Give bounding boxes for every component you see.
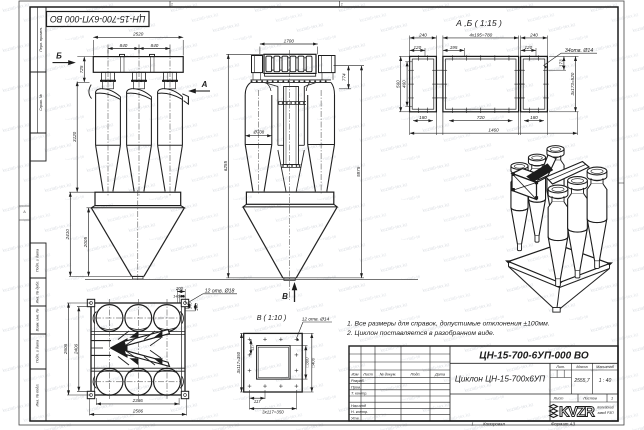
- svg-text:5975: 5975: [356, 166, 361, 177]
- svg-text:1. Все размеры для справок, до: 1. Все размеры для справок, допустимые о…: [347, 320, 550, 328]
- svg-text:2. Циклон поставляется в разоб: 2. Циклон поставляется в разобранном вид…: [346, 329, 495, 337]
- svg-text:1460: 1460: [488, 127, 499, 132]
- svg-text:840: 840: [120, 43, 128, 48]
- svg-text:1700: 1700: [284, 38, 295, 43]
- svg-text:Масса: Масса: [576, 365, 587, 369]
- svg-text:№ докум.: № докум.: [380, 373, 397, 377]
- svg-text:3120: 3120: [72, 131, 77, 142]
- svg-text:ЦН-15-700-6УП-000 ВО: ЦН-15-700-6УП-000 ВО: [50, 14, 146, 24]
- svg-text:Масштаб: Масштаб: [596, 365, 615, 369]
- svg-text:Инв. № подл.: Инв. № подл.: [36, 384, 40, 407]
- svg-text:В: В: [282, 292, 288, 301]
- svg-text:2586: 2586: [132, 409, 144, 414]
- svg-text:Копировал: Копировал: [483, 421, 505, 426]
- svg-text:Перв. примен.: Перв. примен.: [39, 27, 43, 52]
- svg-text:12 отв. Ø18: 12 отв. Ø18: [205, 288, 235, 294]
- svg-text:Формат А3: Формат А3: [551, 421, 576, 426]
- svg-text:завод РЗП: завод РЗП: [596, 411, 614, 415]
- svg-text:Б: Б: [56, 52, 62, 61]
- svg-text:Подп. и дата: Подп. и дата: [36, 340, 40, 363]
- svg-text:Разраб.: Разраб.: [351, 379, 365, 383]
- svg-text:Нач.отд: Нач.отд: [351, 404, 366, 408]
- svg-text:240: 240: [418, 32, 427, 37]
- svg-text:117: 117: [250, 343, 255, 350]
- svg-text:Дата: Дата: [434, 373, 445, 377]
- svg-text:6255: 6255: [223, 161, 228, 172]
- svg-text:□300: □300: [305, 357, 310, 367]
- svg-text:Лист: Лист: [362, 373, 373, 377]
- svg-text:Пров.: Пров.: [351, 385, 361, 389]
- svg-text:1 : 40: 1 : 40: [599, 378, 612, 384]
- svg-text:В ( 1:10 ): В ( 1:10 ): [257, 313, 287, 322]
- svg-text:3x173=520: 3x173=520: [570, 72, 575, 95]
- svg-text:А ,Б ( 1:15 ): А ,Б ( 1:15 ): [455, 18, 502, 28]
- svg-text:Подп.: Подп.: [410, 373, 420, 377]
- svg-text:Справ. №: Справ. №: [39, 94, 43, 111]
- svg-text:Листов: Листов: [582, 397, 597, 401]
- svg-text:А: А: [23, 210, 26, 214]
- svg-text:180: 180: [530, 115, 538, 120]
- svg-text:2: 2: [341, 3, 343, 7]
- svg-text:460: 460: [402, 80, 407, 88]
- svg-text:2406: 2406: [73, 343, 78, 355]
- svg-text:560: 560: [395, 80, 400, 88]
- svg-text:Взам. инв. №: Взам. инв. №: [36, 309, 40, 332]
- svg-text:240: 240: [529, 32, 538, 37]
- svg-text:120: 120: [524, 45, 532, 50]
- svg-text:Н. контр.: Н. контр.: [351, 410, 368, 414]
- svg-text:2606: 2606: [63, 343, 68, 355]
- svg-text:Утв.: Утв.: [351, 416, 360, 420]
- svg-text:Ø708: Ø708: [253, 129, 265, 134]
- svg-text:Циклон ЦН-15-700х6УП: Циклон ЦН-15-700х6УП: [455, 375, 545, 384]
- svg-text:180: 180: [419, 115, 427, 120]
- svg-text:117: 117: [254, 399, 262, 404]
- svg-text:2520: 2520: [132, 32, 144, 37]
- svg-text:4x195=780: 4x195=780: [469, 32, 492, 37]
- svg-text:Инв. № дубл.: Инв. № дубл.: [36, 281, 40, 304]
- svg-text:725: 725: [79, 65, 84, 73]
- svg-text:173: 173: [559, 59, 564, 67]
- svg-text:Подп. и дата: Подп. и дата: [36, 249, 40, 272]
- svg-text:195: 195: [450, 45, 458, 50]
- svg-text:34отв. Ø14: 34отв. Ø14: [565, 48, 593, 54]
- svg-text:140: 140: [188, 302, 193, 309]
- svg-text:720: 720: [477, 115, 485, 120]
- svg-text:Лит.: Лит.: [555, 365, 565, 369]
- svg-text:2410: 2410: [65, 229, 70, 241]
- svg-text:2555,7: 2555,7: [573, 378, 590, 384]
- svg-text:Изм: Изм: [351, 373, 358, 377]
- svg-text:Копейский: Копейский: [597, 406, 613, 410]
- svg-text:200: 200: [175, 286, 184, 291]
- svg-text:2386: 2386: [132, 398, 144, 403]
- svg-text:Лист: Лист: [553, 397, 564, 401]
- svg-text:KVZR: KVZR: [559, 405, 595, 421]
- svg-text:200: 200: [194, 303, 199, 312]
- svg-text:120: 120: [413, 45, 421, 50]
- svg-text:А: А: [201, 80, 208, 89]
- svg-text:2: 2: [171, 3, 173, 7]
- svg-text:774: 774: [342, 73, 347, 81]
- svg-text:840: 840: [151, 43, 159, 48]
- svg-text:2005: 2005: [83, 237, 88, 249]
- svg-text:3x117=350: 3x117=350: [262, 410, 284, 415]
- svg-text:□400: □400: [311, 357, 316, 367]
- svg-text:ЦН-15-700-6УП-000 ВО: ЦН-15-700-6УП-000 ВО: [479, 350, 589, 361]
- svg-text:Т. контр.: Т. контр.: [351, 392, 367, 396]
- svg-text:3x117=350: 3x117=350: [236, 351, 241, 373]
- svg-text:1: 1: [611, 397, 613, 401]
- svg-text:12 отв. Ø14: 12 отв. Ø14: [302, 317, 330, 323]
